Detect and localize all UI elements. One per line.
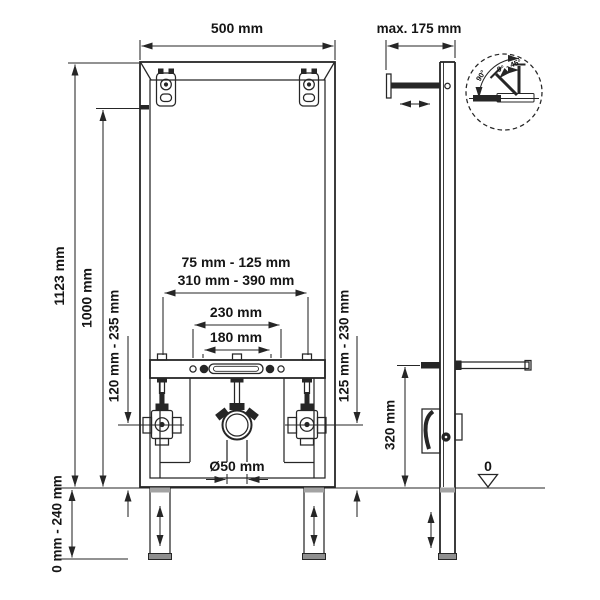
bowl-bracket <box>422 409 462 453</box>
dim-120-235-label: 120 mm - 235 mm <box>107 290 122 403</box>
datum-zero-label: 0 <box>484 458 492 474</box>
dim-1000-label: 1000 mm <box>79 268 95 328</box>
leg-left <box>149 487 172 560</box>
dim-230-label: 230 mm <box>210 304 262 320</box>
dim-320-label: 320 mm <box>383 400 398 450</box>
water-fitting-right <box>288 378 326 445</box>
dim-1123-label: 1123 mm <box>51 246 67 305</box>
angle-detail: 90° 0° - 45° <box>466 54 542 130</box>
dim-125-230-label: 125 mm - 230 mm <box>337 290 352 403</box>
dim-500-label: 500 mm <box>211 20 263 36</box>
leg-side <box>431 488 457 560</box>
angle-90-label: 90° <box>474 68 488 82</box>
wall-bracket-left <box>157 69 176 107</box>
leg-right <box>303 487 326 560</box>
wall-support-rod <box>387 74 441 104</box>
height-reference-mark <box>141 105 150 110</box>
outlet-connector <box>421 361 531 371</box>
wall-bracket-right <box>300 69 319 107</box>
outlet-pipe <box>215 378 259 462</box>
technical-drawing: 500 mm 1123 mm 1000 mm 120 mm - 235 mm 1… <box>0 0 600 600</box>
datum-triangle-icon <box>479 475 498 488</box>
crossbar <box>150 354 325 378</box>
dim-310-390-label: 310 mm - 390 mm <box>178 272 295 288</box>
dim-50-label: Ø50 mm <box>209 458 264 474</box>
dim-0-240-label: 0 mm - 240 mm <box>50 475 65 573</box>
water-fitting-left <box>143 378 181 445</box>
dim-175-label: max. 175 mm <box>377 21 462 36</box>
post-hole <box>445 83 450 88</box>
dim-180-label: 180 mm <box>210 329 262 345</box>
dim-75-125-label: 75 mm - 125 mm <box>182 254 291 270</box>
crossbar-slot <box>209 364 263 374</box>
installation-frame-drawing: 500 mm 1123 mm 1000 mm 120 mm - 235 mm 1… <box>0 0 600 600</box>
floor-datum: 0 <box>479 458 498 487</box>
